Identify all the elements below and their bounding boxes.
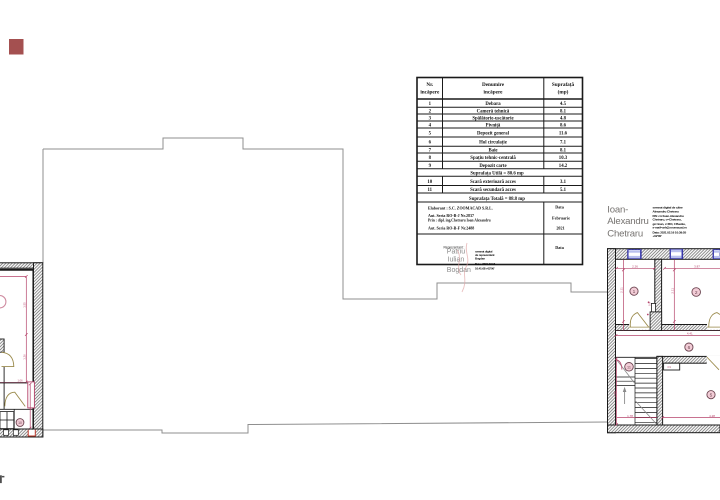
svg-text:Aut. Seria RO-B-F Nr.2488: Aut. Seria RO-B-F Nr.2488 bbox=[428, 226, 474, 231]
svg-text:1.55: 1.55 bbox=[22, 302, 26, 308]
svg-text:Elaborant : S.C. ZOOMACAD S.R.: Elaborant : S.C. ZOOMACAD S.R.L. bbox=[428, 206, 493, 211]
svg-text:Ioan-: Ioan- bbox=[607, 205, 628, 216]
svg-text:Alexandru: Alexandru bbox=[607, 216, 648, 227]
svg-text:Spălătorie-uscătorie: Spălătorie-uscătorie bbox=[472, 116, 513, 121]
svg-text:Iulian: Iulian bbox=[448, 257, 465, 264]
svg-text:8.1: 8.1 bbox=[560, 149, 567, 154]
svg-text:Februarie: Februarie bbox=[552, 216, 570, 221]
svg-text:Denumire: Denumire bbox=[482, 82, 505, 88]
svg-text:Hol circulație: Hol circulație bbox=[479, 141, 507, 146]
svg-text:1.06: 1.06 bbox=[17, 378, 23, 382]
svg-text:Bogdan: Bogdan bbox=[475, 256, 485, 260]
svg-text:încăpere: încăpere bbox=[419, 90, 440, 96]
svg-text:Suprafața Totală = 88.8 mp: Suprafața Totală = 88.8 mp bbox=[469, 197, 525, 202]
svg-text:2: 2 bbox=[695, 290, 698, 296]
svg-text:Scară exterioară acces: Scară exterioară acces bbox=[470, 180, 516, 185]
svg-text:Aut. Seria RO-B-J Nr.2837: Aut. Seria RO-B-J Nr.2837 bbox=[428, 213, 474, 218]
svg-text:2.26: 2.26 bbox=[632, 265, 638, 269]
svg-text:Cameră tehnică: Cameră tehnică bbox=[477, 109, 510, 114]
svg-text:1.26: 1.26 bbox=[22, 354, 26, 360]
svg-text:7.1: 7.1 bbox=[560, 141, 567, 146]
svg-text:10:41:08 +02'00': 10:41:08 +02'00' bbox=[475, 267, 495, 271]
svg-text:Suprafața Utilă = 80.6 mp: Suprafața Utilă = 80.6 mp bbox=[470, 172, 524, 177]
svg-text:Suprafață: Suprafață bbox=[552, 82, 575, 88]
svg-text:8.1: 8.1 bbox=[560, 109, 567, 114]
svg-text:Patriu: Patriu bbox=[447, 248, 465, 255]
svg-text:încăpere: încăpere bbox=[483, 90, 504, 96]
svg-text:10: 10 bbox=[427, 180, 432, 185]
svg-text:Depozit general: Depozit general bbox=[477, 131, 510, 136]
svg-text:10.3: 10.3 bbox=[559, 156, 568, 161]
svg-text:Alexandru Chetraru: Alexandru Chetraru bbox=[653, 209, 679, 213]
svg-text:Pivniță: Pivniță bbox=[486, 123, 501, 128]
svg-text:3.87: 3.87 bbox=[694, 265, 700, 269]
svg-text:Nr.: Nr. bbox=[426, 82, 434, 88]
svg-text:4.28: 4.28 bbox=[709, 414, 715, 418]
svg-text:10: 10 bbox=[18, 421, 22, 425]
svg-text:4.5: 4.5 bbox=[560, 102, 567, 107]
svg-text:+02'00': +02'00' bbox=[653, 234, 663, 238]
svg-text:Baie: Baie bbox=[488, 149, 497, 154]
svg-text:1: 1 bbox=[633, 289, 636, 295]
svg-text:6: 6 bbox=[688, 345, 691, 351]
svg-text:Depozit carte: Depozit carte bbox=[479, 164, 506, 169]
svg-text:2.11: 2.11 bbox=[670, 288, 674, 294]
svg-text:5.1: 5.1 bbox=[560, 188, 567, 193]
svg-text:e-mail=arh@zoomacad.ro: e-mail=arh@zoomacad.ro bbox=[653, 226, 688, 230]
svg-text:(mp): (mp) bbox=[558, 89, 569, 96]
svg-text:Prin : dipl. ing.Chetraru Ioan: Prin : dipl. ing.Chetraru Ioan Alexandru bbox=[428, 219, 491, 223]
svg-text:11: 11 bbox=[627, 365, 631, 369]
svg-text:4.41: 4.41 bbox=[687, 332, 693, 336]
svg-text:1.78: 1.78 bbox=[627, 414, 633, 418]
svg-text:5: 5 bbox=[710, 392, 713, 398]
svg-text:Data: Data bbox=[555, 205, 565, 210]
svg-text:Spațiu tehnic-centrală: Spațiu tehnic-centrală bbox=[470, 156, 516, 161]
svg-text:11: 11 bbox=[428, 188, 433, 193]
svg-text:Scară secundară acces: Scară secundară acces bbox=[470, 188, 516, 193]
svg-text:2021: 2021 bbox=[556, 226, 564, 231]
svg-text:Debara: Debara bbox=[485, 102, 501, 107]
svg-text:Chetraru, o=Chetraru,: Chetraru, o=Chetraru, bbox=[653, 218, 682, 222]
svg-text:3.1: 3.1 bbox=[560, 180, 567, 185]
svg-text:11.6: 11.6 bbox=[559, 131, 568, 136]
svg-text:Chetraru: Chetraru bbox=[607, 228, 643, 239]
svg-text:4.8: 4.8 bbox=[560, 116, 567, 121]
svg-text:14.2: 14.2 bbox=[559, 164, 568, 169]
svg-text:Data: Data bbox=[555, 245, 565, 250]
svg-text:2.11: 2.11 bbox=[619, 287, 623, 293]
svg-text:8.6: 8.6 bbox=[560, 123, 567, 128]
svg-text:2.80: 2.80 bbox=[613, 391, 617, 397]
